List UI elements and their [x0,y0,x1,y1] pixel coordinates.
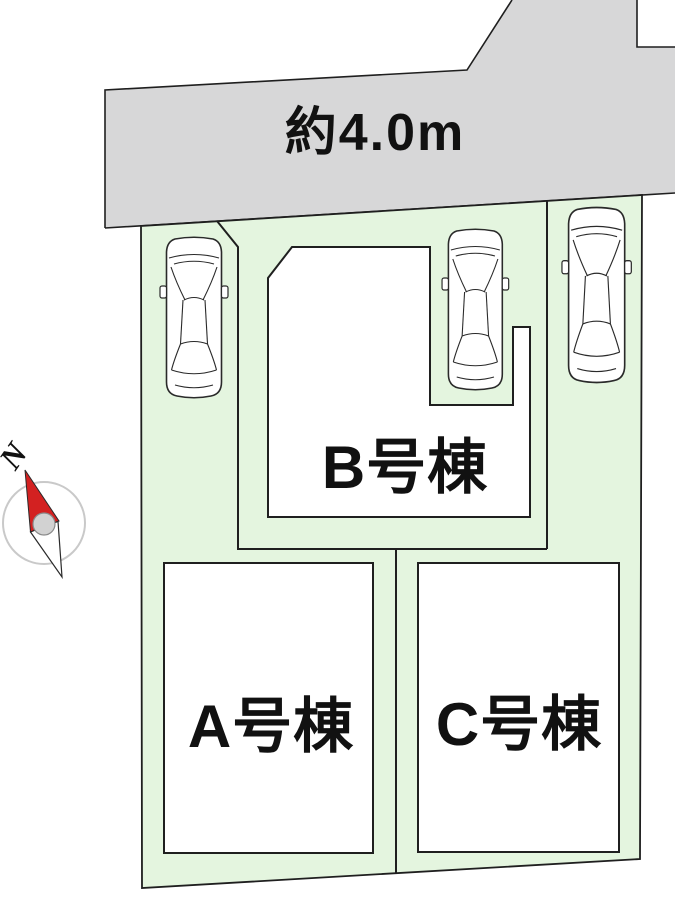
site-plan-page: 約4.0m B号棟 A号棟 C号棟 [0,0,675,900]
compass: N [0,434,85,577]
car-icon-middle [442,229,509,390]
building-a-label: A号棟 [188,693,354,760]
building-b-label: B号棟 [322,434,488,501]
road-width-label: 約4.0m [285,104,466,162]
compass-north-label: N [0,434,35,476]
compass-pivot [33,513,55,535]
car-icon-right [562,208,631,383]
building-c-label: C号棟 [436,691,602,758]
road-area: 約4.0m [105,0,675,228]
site-plan-svg: 約4.0m B号棟 A号棟 C号棟 [0,0,675,900]
car-icon-left [160,237,228,398]
